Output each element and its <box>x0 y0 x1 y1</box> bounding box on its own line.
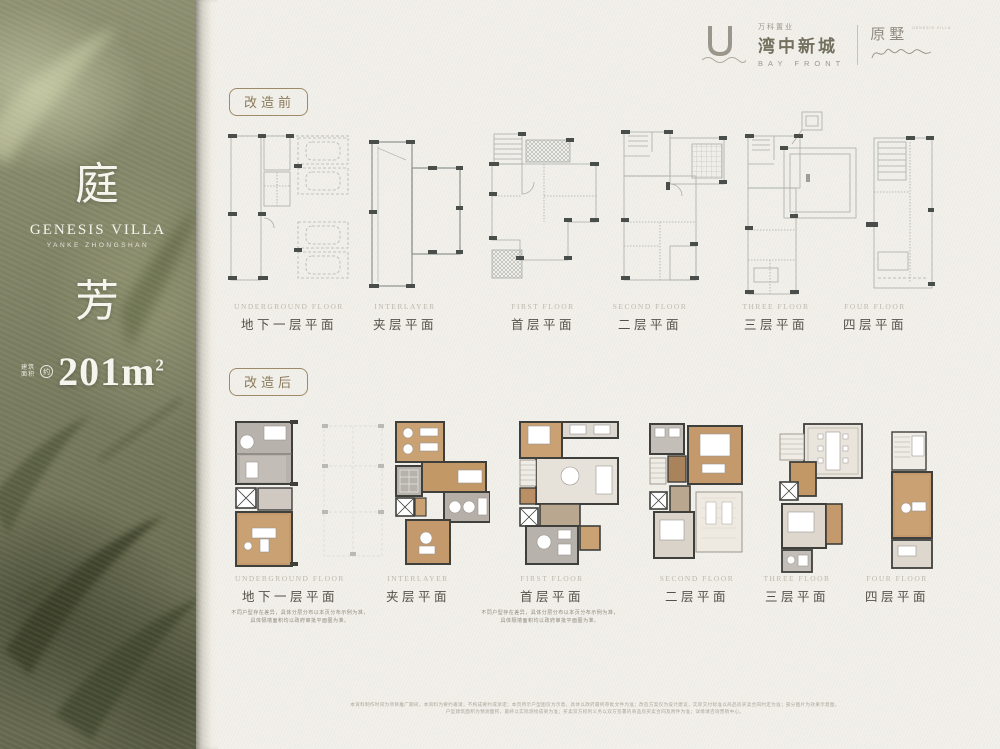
project-name-en: BAY FRONT <box>758 59 845 68</box>
floorplan-before-interlayer <box>366 138 466 290</box>
logo-divider <box>857 25 858 65</box>
floorplan-before-underground <box>228 122 354 294</box>
floor-label-after-first: FIRST FLOOR 首层平面 <box>477 574 627 605</box>
floorplan-before-fourth <box>864 132 940 294</box>
legal-disclaimer: 本资料制作时间为项目推广期间，本资料为要约邀请，不构成要约或承诺；本页所示户型图… <box>230 702 960 715</box>
floorplan-before-second <box>616 126 732 288</box>
note-line: 具体隔墙面积均以政府审批平面图为准。 <box>475 618 625 626</box>
area-value: 201m2 <box>58 348 165 395</box>
area-number: 201m <box>58 349 155 394</box>
floor-label-cn: 首层平面 <box>477 586 627 605</box>
villa-subtitle-small: YANKE ZHONGSHAN <box>0 242 196 249</box>
section-tag-after: 改造后 <box>229 368 308 396</box>
signature-icon <box>870 44 934 62</box>
legal-line-2: 户型建筑面积为预测面积，最终以实际测绘成果为准；买卖双方权利义务以双方签署的商品… <box>230 709 960 716</box>
area-approx-badge: 约 <box>40 365 53 378</box>
page-fold <box>196 0 218 749</box>
sub-brand-note: GENESIS VILLA <box>912 26 951 30</box>
brochure-page: 庭 GENESIS VILLA YANKE ZHONGSHAN 芳 建筑 面积 … <box>0 0 1000 749</box>
ghost-outline <box>320 422 386 562</box>
floor-label-en: INTERLAYER <box>343 574 493 583</box>
sidebar-content: 庭 GENESIS VILLA YANKE ZHONGSHAN 芳 建筑 面积 … <box>0 0 196 749</box>
floorplan-after-interlayer <box>388 418 490 568</box>
parking-stalls <box>298 138 348 278</box>
elevator-icon <box>236 488 256 508</box>
note-right: 不同户型存在差异，具体分层分布以本页分布示例为准， 具体隔墙面积均以政府审批平面… <box>475 610 625 626</box>
floor-label-en: INTERLAYER <box>330 302 480 311</box>
floorplan-after-first <box>512 418 626 568</box>
area-figure: 建筑 面积 约 201m2 <box>0 348 186 395</box>
floorplan-before-first <box>482 126 608 288</box>
area-prefix-line1: 建筑 <box>21 365 35 372</box>
area-prefix-line2: 面积 <box>21 372 35 379</box>
elevator-icon <box>650 492 667 509</box>
floor-label-cn: 夹层平面 <box>330 314 480 333</box>
floorplan-after-underground <box>230 418 316 570</box>
floorplan-after-fourth <box>886 428 938 572</box>
bayfront-logo-icon <box>700 22 746 68</box>
floor-label-en: FIRST FLOOR <box>477 574 627 583</box>
floor-label-en: FOUR FLOOR <box>822 574 972 583</box>
area-prefix: 建筑 面积 <box>21 365 35 379</box>
villa-title-bottom: 芳 <box>0 265 196 329</box>
floor-label-en: FOUR FLOOR <box>800 302 950 311</box>
developer-name: 万科置业 <box>758 22 845 32</box>
sidebar: 庭 GENESIS VILLA YANKE ZHONGSHAN 芳 建筑 面积 … <box>0 0 196 749</box>
elevator-icon <box>520 508 538 526</box>
floor-label-before-interlayer: INTERLAYER 夹层平面 <box>330 302 480 333</box>
note-line: 不同户型存在差异，具体分层分布以本页分布示例为准， <box>475 610 625 618</box>
note-line: 具体隔墙面积均以政府审批平面图为准。 <box>225 618 375 626</box>
sub-brand-name: 原墅 <box>870 23 908 44</box>
elevator-icon <box>780 482 798 500</box>
floor-label-before-fourth: FOUR FLOOR 四层平面 <box>800 302 950 333</box>
villa-title-top: 庭 <box>0 148 196 212</box>
floor-label-cn: 夹层平面 <box>343 586 493 605</box>
floor-label-after-fourth: FOUR FLOOR 四层平面 <box>822 574 972 605</box>
sub-brand: 原墅 GENESIS VILLA <box>870 23 951 67</box>
elevator-icon <box>396 498 414 516</box>
area-exponent: 2 <box>155 356 165 375</box>
brand-logo: 万科置业 湾中新城 BAY FRONT 原墅 GENESIS VILLA <box>700 22 951 68</box>
floor-label-cn: 四层平面 <box>822 586 972 605</box>
floor-label-cn: 四层平面 <box>800 314 950 333</box>
floorplan-before-third <box>744 110 862 298</box>
note-left: 不同户型存在差异，具体分层分布以本页分布示例为准， 具体隔墙面积均以政府审批平面… <box>225 610 375 626</box>
floorplan-after-third <box>774 420 866 578</box>
section-tag-before: 改造前 <box>229 88 308 116</box>
logo-text: 万科置业 湾中新城 BAY FRONT <box>758 22 845 68</box>
villa-subtitle: GENESIS VILLA <box>0 222 196 239</box>
floorplan-after-second <box>644 420 748 568</box>
floor-label-after-interlayer: INTERLAYER 夹层平面 <box>343 574 493 605</box>
note-line: 不同户型存在差异，具体分层分布以本页分布示例为准， <box>225 610 375 618</box>
project-name: 湾中新城 <box>758 32 845 57</box>
